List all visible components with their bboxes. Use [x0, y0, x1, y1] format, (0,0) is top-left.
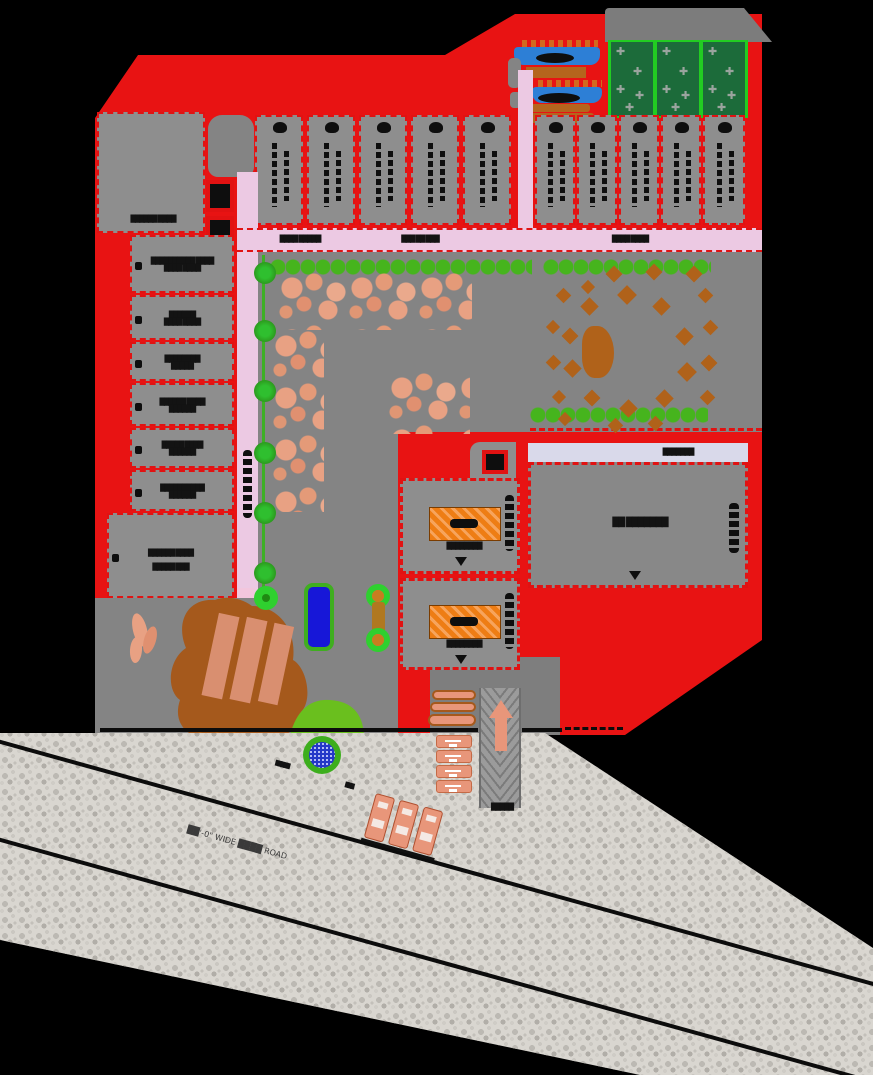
- shrub-diamond: [562, 328, 579, 345]
- car-blob: [377, 122, 391, 133]
- flower-cross-icon: ✚: [717, 102, 726, 113]
- flower-cross-icon: ✚: [708, 84, 717, 95]
- shrub-diamond: [563, 359, 581, 377]
- shrub-diamond: [675, 327, 693, 345]
- building-c-walkway-label: ███████: [638, 449, 718, 456]
- car-blob: [591, 122, 605, 133]
- flower-cross-icon: ✚: [727, 90, 736, 101]
- entry-arrow-icon-stem: [495, 717, 507, 751]
- car-blob: [718, 122, 732, 133]
- shrub-diamond: [581, 280, 595, 294]
- flower-cross-icon: ✚: [671, 102, 680, 113]
- stall-text-blob: [674, 143, 679, 207]
- shrub-diamond: [701, 355, 718, 372]
- shrub-cluster: [582, 326, 614, 378]
- building-b-label: ████████: [421, 641, 507, 648]
- pump-room-core: [482, 450, 508, 474]
- parking-stall: [619, 115, 659, 225]
- flower-cross-icon: ✚: [679, 66, 688, 77]
- canopy-beam: [526, 67, 586, 78]
- shrub-diamond: [608, 418, 624, 434]
- building-b-entry-arrow: [455, 655, 467, 664]
- walkway-tree: [254, 320, 276, 342]
- flower-cross-icon: ✚: [625, 102, 634, 113]
- compound-wall-dashes: [565, 727, 623, 730]
- building-c-walkway: ███████: [528, 443, 748, 462]
- shrub-diamond: [558, 412, 572, 426]
- shrub-diamond: [606, 266, 623, 283]
- parking-stall: [535, 115, 575, 225]
- flower-cross-icon: ✚: [633, 66, 642, 77]
- entry-arrow-icon: [489, 700, 513, 718]
- car-blob: [633, 122, 647, 133]
- compound-wall: [522, 728, 562, 732]
- walkway-tree: [254, 562, 276, 584]
- water-feature-pool: [304, 583, 334, 651]
- stall-text-blob: [717, 143, 722, 207]
- stall-text-blob: [492, 151, 497, 201]
- building-a-label: ████████: [421, 543, 507, 550]
- site-plan-canvas: ✚✚✚✚✚✚✚✚✚✚✚✚✚✚✚ ██████ ████ ██████████ █…: [0, 0, 873, 1075]
- walkway-tree: [254, 502, 276, 524]
- planting-panel: ✚✚✚✚✚: [611, 42, 653, 116]
- flower-cross-icon: ✚: [708, 46, 717, 57]
- shrub-diamond: [584, 390, 601, 407]
- stall-text-blob: [590, 143, 595, 207]
- car-blob: [429, 122, 443, 133]
- road-surface: ██'-0" WIDE ████ ROAD: [0, 690, 873, 1075]
- flower-cross-icon: ✚: [662, 84, 671, 95]
- building-c: ██ ███████: [528, 462, 748, 588]
- walkway-label: ████ ████: [595, 236, 665, 243]
- walkway-tree: [254, 380, 276, 402]
- planting-panel: ✚✚✚✚✚: [703, 42, 745, 116]
- building-a-name-bar: [450, 519, 478, 528]
- flower-cross-icon: ✚: [616, 84, 625, 95]
- shrub-diamond: [552, 390, 566, 404]
- building-a-entry-arrow: [455, 557, 467, 566]
- road-lane-line: [0, 737, 873, 1035]
- building-b-side-text: [505, 593, 514, 649]
- shrub-diamond: [617, 285, 637, 305]
- stall-text-blob: [324, 143, 329, 207]
- building-b-roof: [429, 605, 501, 639]
- building-a-side-text: [505, 495, 514, 551]
- shrub-diamond: [686, 266, 703, 283]
- shrub-diamond: [698, 288, 714, 304]
- shrub-diamond: [700, 390, 716, 406]
- shrub-diamond: [677, 362, 697, 382]
- fountain-water: [309, 742, 335, 768]
- walkway-tree-row: [0, 0, 300, 745]
- stall-text-blob: [440, 151, 445, 201]
- fountain: [303, 736, 341, 774]
- car-blob: [325, 122, 339, 133]
- awning-text-blob: [536, 53, 574, 63]
- shrub-diamond: [546, 320, 560, 334]
- stall-text-blob: [686, 151, 691, 201]
- shrub-diamond: [580, 297, 598, 315]
- awning-text-blob: [538, 93, 580, 103]
- shrub-diamond: [655, 389, 673, 407]
- entry-label: █████: [480, 804, 524, 811]
- shrub-diamond: [546, 355, 562, 371]
- walkway-vertical-top: [518, 70, 533, 240]
- road-lane-line: [0, 937, 873, 1075]
- stall-text-blob: [602, 151, 607, 201]
- stall-text-blob: [388, 151, 393, 201]
- flower-bed-centre: [388, 372, 470, 434]
- stall-text-blob: [632, 143, 637, 207]
- building-c-entry-arrow: [629, 571, 641, 580]
- stall-text-blob: [548, 143, 553, 207]
- car-blob: [675, 122, 689, 133]
- parking-stall: [463, 115, 511, 225]
- shrub-diamond: [646, 264, 663, 281]
- stall-text-blob: [560, 151, 565, 201]
- shrub-diamond: [556, 288, 572, 304]
- building-a-roof: [429, 507, 501, 541]
- canopy-post-row: [522, 40, 598, 47]
- walkway-label: ███ ██ ███: [385, 236, 455, 243]
- walkway-tree: [254, 262, 276, 284]
- flower-bed-top: [278, 272, 472, 330]
- building-b: ████████: [400, 578, 520, 670]
- parking-stall: [661, 115, 701, 225]
- stall-text-blob: [729, 151, 734, 201]
- stall-text-blob: [336, 151, 341, 201]
- road-name-label: ██'-0" WIDE ████ ROAD: [186, 825, 314, 868]
- stall-text-blob: [376, 143, 381, 207]
- stall-text-blob: [644, 151, 649, 201]
- shrub-diamond: [652, 297, 670, 315]
- canopy-post-row: [538, 80, 602, 87]
- canopy-beam: [528, 104, 590, 112]
- flower-cross-icon: ✚: [616, 46, 625, 57]
- top-right-corner-block: [605, 8, 772, 42]
- shrub-diamond: [648, 416, 664, 432]
- car-blob: [549, 122, 563, 133]
- parking-stall: [359, 115, 407, 225]
- stall-text-blob: [480, 143, 485, 207]
- flower-cross-icon: ✚: [681, 90, 690, 101]
- play-equipment-bottom: [366, 628, 390, 652]
- parking-stall: [411, 115, 459, 225]
- car-blob: [481, 122, 495, 133]
- shrub-diamond: [703, 320, 719, 336]
- pump-room: [470, 442, 516, 482]
- building-c-side-text: [729, 503, 739, 553]
- parking-stall: [307, 115, 355, 225]
- compound-wall: [100, 728, 478, 732]
- walkway-horizontal: ████ ████████ ██ ███████ ████: [237, 228, 762, 252]
- walkway-tree: [254, 442, 276, 464]
- flower-cross-icon: ✚: [662, 46, 671, 57]
- parking-stall: [577, 115, 617, 225]
- building-c-label: ██ ███████: [597, 519, 683, 528]
- building-a: ████████: [400, 478, 520, 574]
- ornamental-garden: [540, 252, 762, 432]
- flower-cross-icon: ✚: [725, 66, 734, 77]
- stall-text-blob: [428, 143, 433, 207]
- parking-stall: [703, 115, 745, 225]
- shrub-diamond: [619, 399, 637, 417]
- planting-panels: ✚✚✚✚✚✚✚✚✚✚✚✚✚✚✚: [608, 40, 748, 118]
- planting-panel: ✚✚✚✚✚: [657, 42, 699, 116]
- flower-cross-icon: ✚: [635, 90, 644, 101]
- building-b-name-bar: [450, 617, 478, 626]
